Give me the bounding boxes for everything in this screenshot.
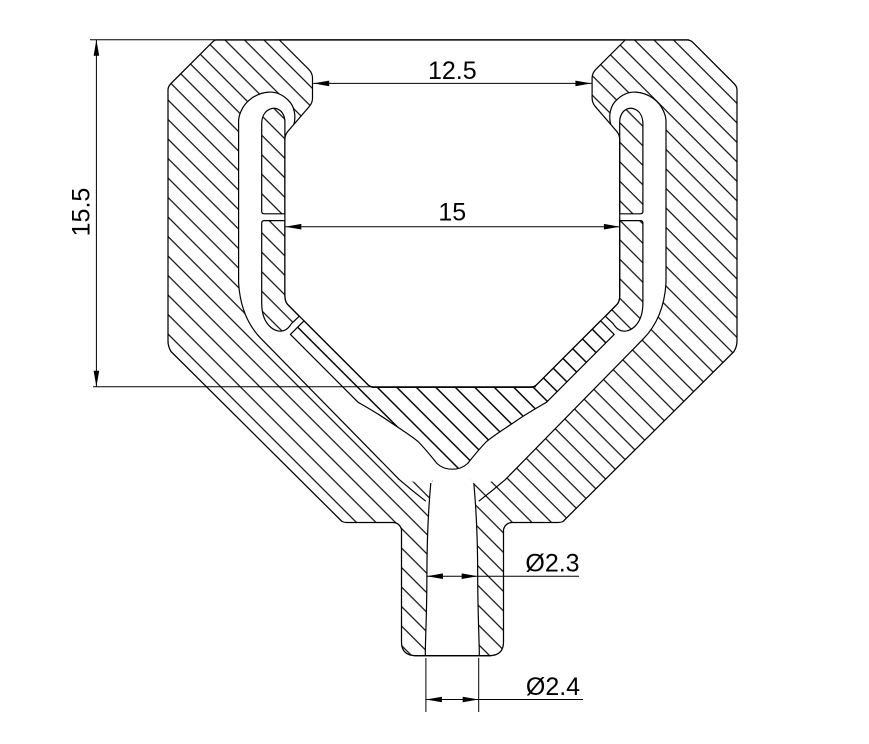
svg-text:15.5: 15.5	[68, 188, 96, 237]
svg-text:Ø2.4: Ø2.4	[526, 673, 580, 701]
svg-text:Ø2.3: Ø2.3	[525, 549, 579, 577]
svg-text:12.5: 12.5	[428, 57, 477, 85]
svg-text:15: 15	[438, 199, 466, 227]
